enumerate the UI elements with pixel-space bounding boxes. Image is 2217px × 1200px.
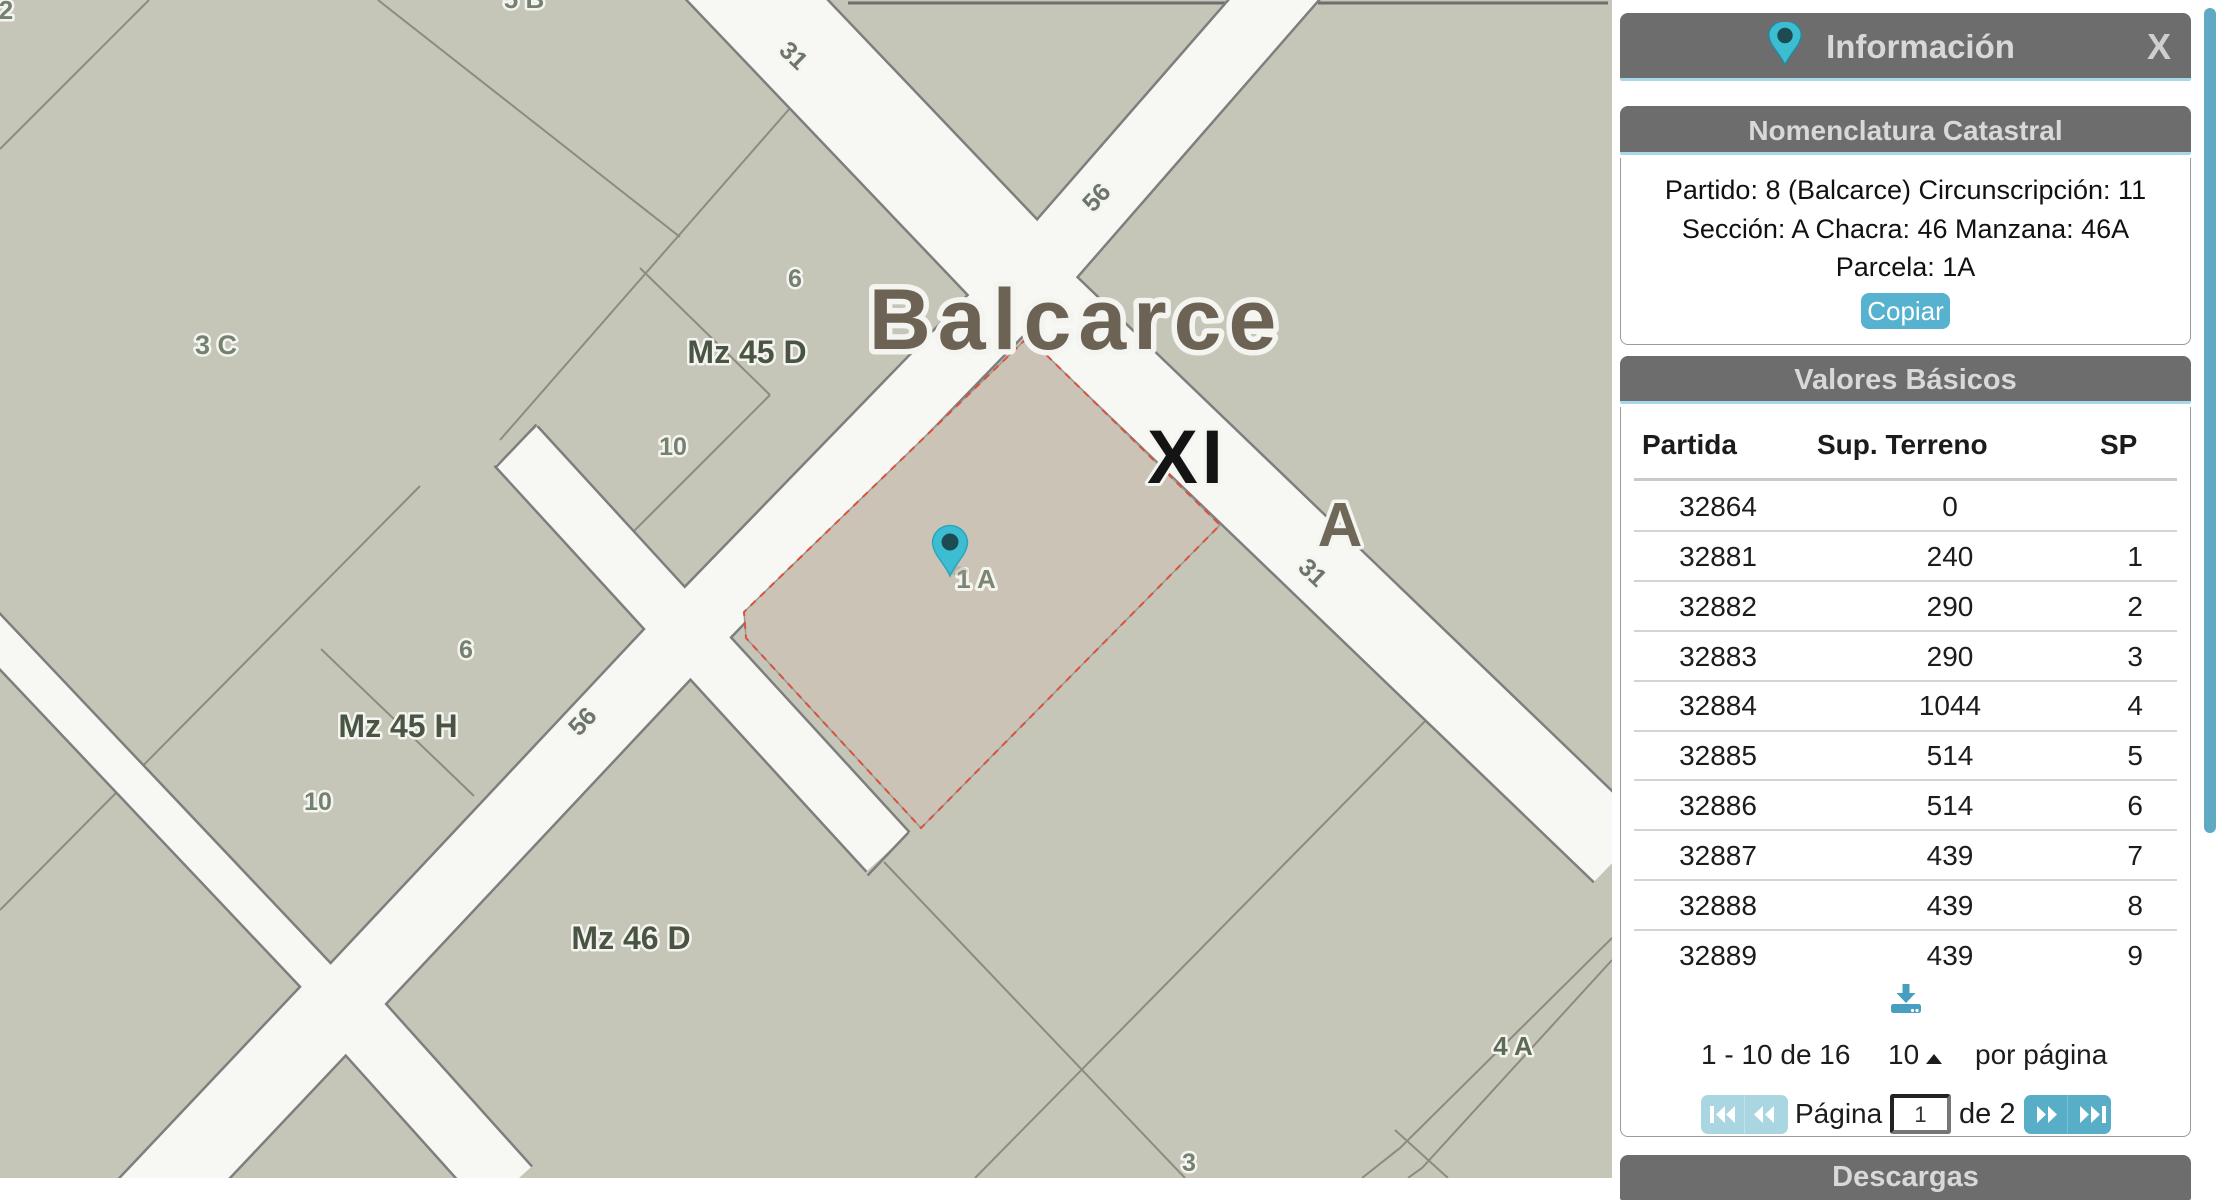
svg-text:Mz 46 D: Mz 46 D <box>571 920 690 956</box>
svg-text:5 B: 5 B <box>504 0 544 14</box>
svg-text:6: 6 <box>459 636 473 664</box>
svg-text:2: 2 <box>0 0 13 25</box>
svg-text:3 C: 3 C <box>195 330 237 360</box>
svg-text:4 A: 4 A <box>1493 1031 1533 1061</box>
svg-text:Balcarce: Balcarce <box>869 272 1284 368</box>
svg-text:10: 10 <box>659 433 687 461</box>
svg-text:Mz 45 H: Mz 45 H <box>338 708 457 744</box>
svg-text:10: 10 <box>304 788 332 816</box>
svg-text:Mz 45 D: Mz 45 D <box>687 334 806 370</box>
svg-text:3: 3 <box>1182 1149 1196 1177</box>
svg-text:XI: XI <box>1147 415 1227 500</box>
svg-text:A: A <box>1318 491 1363 560</box>
svg-text:6: 6 <box>788 265 802 293</box>
